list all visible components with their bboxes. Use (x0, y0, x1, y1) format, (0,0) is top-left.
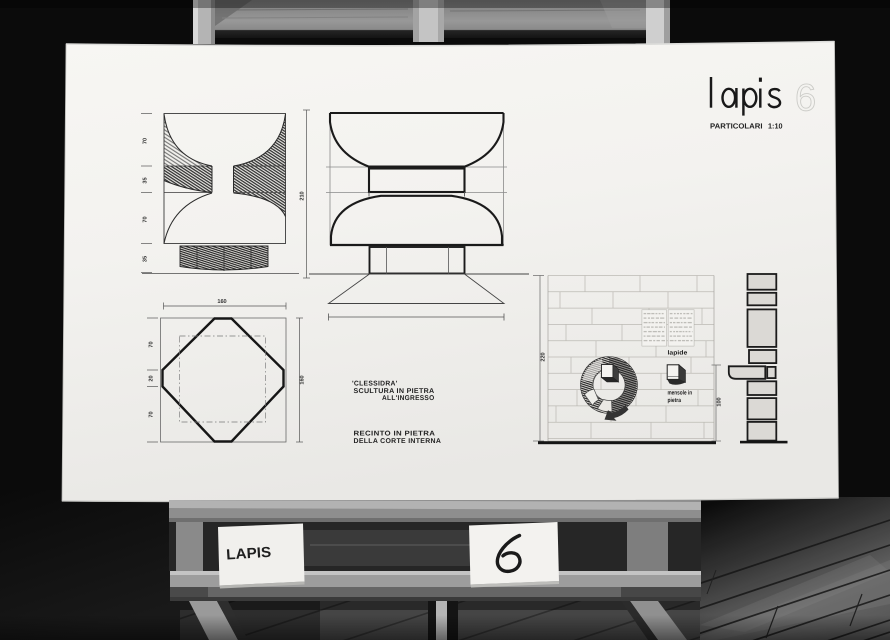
svg-text:220: 220 (541, 352, 547, 361)
svg-text:6: 6 (795, 78, 816, 120)
svg-text:SCULTURA IN PIETRA: SCULTURA IN PIETRA (354, 388, 435, 395)
svg-text:70: 70 (149, 341, 155, 347)
svg-text:70: 70 (149, 411, 155, 417)
svg-text:20: 20 (149, 375, 155, 381)
svg-text:35: 35 (143, 256, 149, 262)
svg-text:70: 70 (143, 138, 149, 144)
svg-text:DELLA CORTE INTERNA: DELLA CORTE INTERNA (354, 438, 442, 445)
svg-text:RECINTO IN PIETRA: RECINTO IN PIETRA (354, 431, 436, 438)
svg-text:210: 210 (300, 191, 306, 200)
svg-text:pietra: pietra (668, 397, 682, 404)
svg-text:100: 100 (717, 397, 723, 406)
svg-text:1:10: 1:10 (768, 121, 783, 130)
svg-text:PARTICOLARI: PARTICOLARI (710, 121, 763, 130)
svg-text:LAPIS: LAPIS (226, 545, 272, 564)
svg-text:35: 35 (143, 177, 149, 183)
svg-text:70: 70 (143, 216, 149, 222)
svg-text:ALL'INGRESSO: ALL'INGRESSO (382, 395, 435, 402)
svg-text:'CLESSIDRA': 'CLESSIDRA' (352, 381, 398, 388)
svg-text:160: 160 (300, 375, 306, 384)
svg-text:mensole in: mensole in (668, 390, 693, 397)
svg-text:lapide: lapide (668, 350, 689, 357)
svg-text:160: 160 (217, 299, 226, 305)
